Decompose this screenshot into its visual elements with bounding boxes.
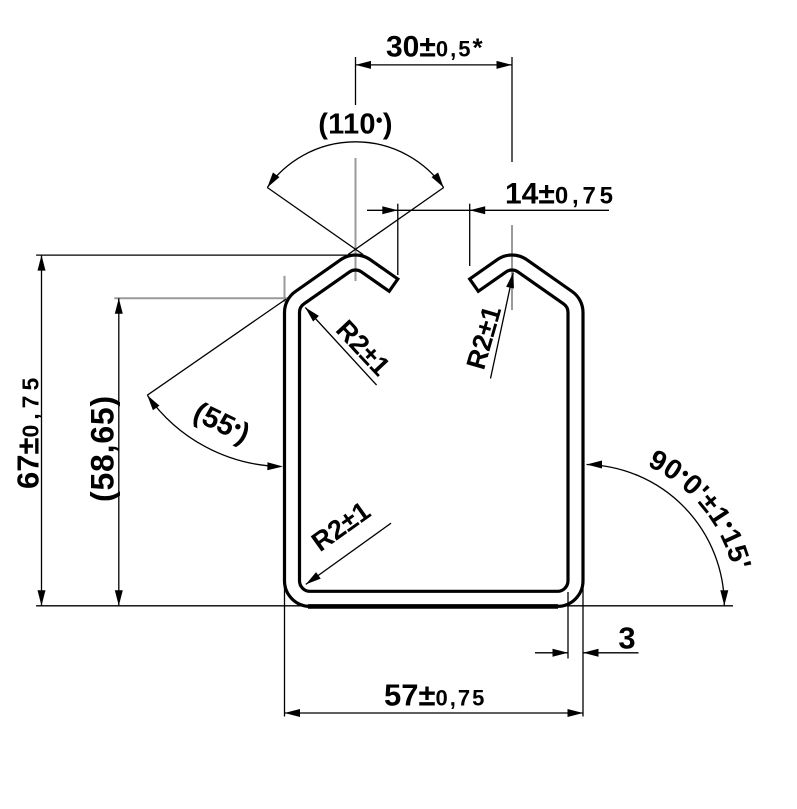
svg-text:(58,65): (58,65) — [85, 395, 121, 502]
svg-text:3: 3 — [618, 621, 635, 656]
svg-text:14±0,75: 14±0,75 — [505, 178, 617, 211]
